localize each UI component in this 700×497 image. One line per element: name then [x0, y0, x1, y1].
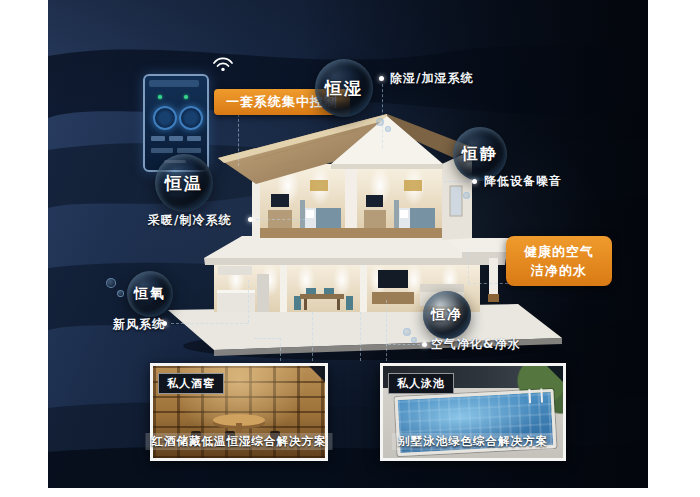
- card-caption: 别墅泳池绿色综合解决方案: [392, 433, 554, 450]
- phone-dial-left: [153, 106, 177, 130]
- feature-bubble-label: 恒静: [462, 144, 498, 165]
- feature-bubble-oxygen: 恒氧: [127, 271, 173, 317]
- connector-line: [312, 312, 313, 361]
- decor-bubble: [403, 328, 411, 336]
- infographic-page: 一套系统集中控制 恒湿 除湿/加湿系统 恒静 降低设备噪音 恒温 采暖/制冷系统…: [0, 0, 700, 497]
- bedroom-tv-right: [366, 195, 383, 207]
- folded-corner-icon: [547, 366, 563, 382]
- feature-bubble-humidity: 恒湿: [315, 59, 373, 117]
- wifi-icon: [212, 54, 234, 72]
- feature-bubble-label: 恒湿: [325, 77, 363, 100]
- connector-line: [248, 280, 249, 323]
- feature-note-quiet: 降低设备噪音: [484, 173, 562, 190]
- side-window: [450, 186, 462, 216]
- decor-bubble: [411, 337, 417, 343]
- connector-line: [360, 312, 361, 361]
- connector-line: [468, 252, 469, 283]
- connector-line: [388, 344, 420, 345]
- connector-line: [382, 84, 383, 148]
- connector-line: [444, 181, 470, 182]
- living-room-tv: [378, 270, 408, 288]
- phone-header: [149, 80, 199, 87]
- feature-note-humidity: 除湿/加湿系统: [390, 70, 473, 87]
- card-caption: 红酒储藏低温恒湿综合解决方案: [146, 433, 333, 450]
- highlight-line2: 洁净的水: [510, 261, 608, 280]
- decor-bubble: [376, 118, 384, 126]
- feature-note-purity: 空气净化&净水: [431, 336, 520, 353]
- pool-card: 私人泳池 别墅泳池绿色综合解决方案: [380, 363, 566, 461]
- decor-bubble: [117, 290, 124, 297]
- wall-art-right: [404, 180, 422, 191]
- connector-line: [171, 323, 248, 324]
- connector-line: [254, 338, 280, 339]
- connector-line: [238, 114, 239, 166]
- porch-column-base: [488, 294, 499, 302]
- decor-bubble: [463, 192, 470, 199]
- dining-table: [300, 294, 344, 299]
- bedroom-tv-left: [271, 194, 289, 207]
- feature-bubble-temperature: 恒温: [155, 154, 213, 212]
- card-badge: 私人酒窖: [158, 373, 224, 394]
- highlight-box: 健康的空气 洁净的水: [506, 236, 612, 286]
- fridge: [257, 274, 269, 312]
- wine-cellar-card: 私人酒窖 红酒储藏低温恒湿综合解决方案: [150, 363, 328, 461]
- feature-bubble-label: 恒净: [431, 306, 463, 324]
- connector-line: [386, 300, 387, 361]
- feature-bubble-label: 恒温: [165, 172, 203, 195]
- connector-line: [468, 283, 508, 284]
- decor-bubble: [106, 278, 116, 288]
- wall-art-left: [310, 180, 328, 191]
- infographic-canvas: 一套系统集中控制 恒湿 除湿/加湿系统 恒静 降低设备噪音 恒温 采暖/制冷系统…: [48, 0, 648, 488]
- kitchen-cabinet: [218, 266, 252, 275]
- feature-bubble-label: 恒氧: [134, 285, 166, 303]
- feature-note-temperature: 采暖/制冷系统: [148, 212, 231, 229]
- feature-bubble-purity: 恒净: [423, 291, 471, 339]
- connector-line: [256, 219, 306, 220]
- connector-line: [280, 338, 281, 361]
- card-badge: 私人泳池: [388, 373, 454, 394]
- folded-corner-icon: [309, 366, 325, 382]
- highlight-line1: 健康的空气: [510, 242, 608, 261]
- phone-dial-right: [179, 106, 203, 130]
- feature-note-oxygen: 新风系统: [113, 316, 165, 333]
- decor-bubble: [385, 126, 391, 132]
